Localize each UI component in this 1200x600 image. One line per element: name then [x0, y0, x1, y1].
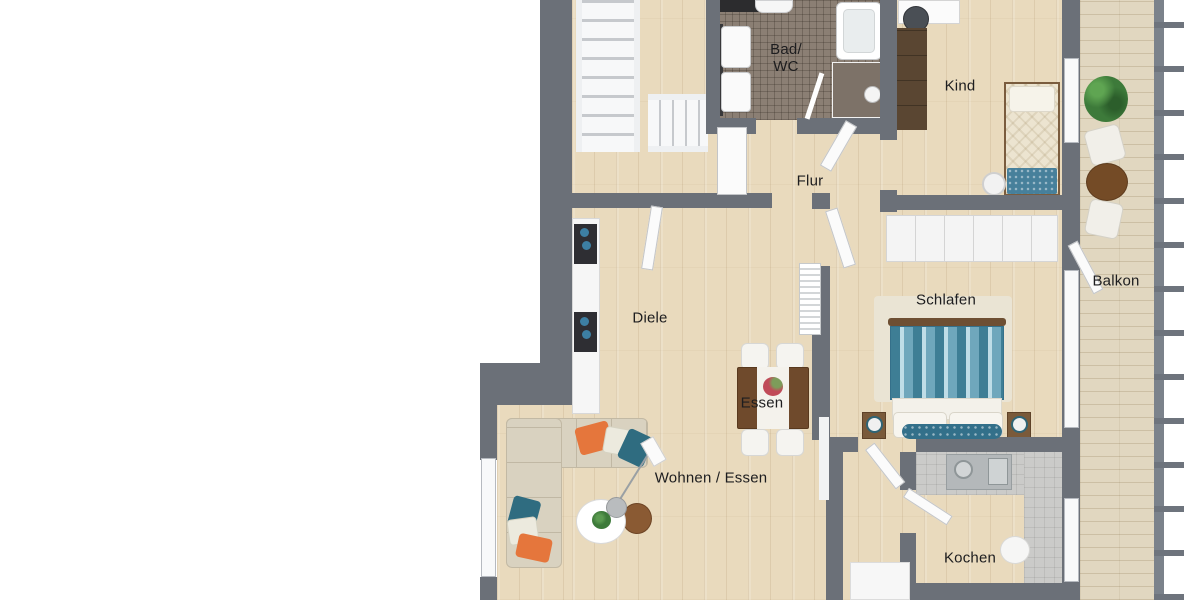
wall-bath-kind [880, 0, 897, 140]
wall-left-jog [480, 363, 572, 405]
toilet [755, 0, 793, 13]
nightstand-left-lamp [866, 416, 883, 433]
wall-schlafen-south-a [828, 437, 858, 452]
diele-radiator [799, 263, 821, 335]
dining-chair-top-left [741, 343, 769, 370]
wall-white-face [819, 417, 829, 500]
schlafen-wardrobe [886, 215, 1058, 262]
washbasin-bottom [721, 72, 751, 112]
kitchen-tile-floor-right [1024, 450, 1062, 588]
wall-left-lower-b [480, 577, 497, 600]
kitchen-pot [954, 460, 973, 479]
shower-drain [864, 86, 881, 103]
kochen-balcony-door [1064, 498, 1079, 582]
room-label-balkon: Balkon [1092, 272, 1139, 289]
balcony-plant [1084, 76, 1128, 122]
kind-bed-blue-blanket [1007, 168, 1057, 194]
bed-bolster [902, 424, 1002, 439]
wall-kind-south [880, 195, 1062, 210]
kind-wardrobe [897, 28, 927, 130]
wall-left-lower-a [480, 405, 497, 460]
sideboard-decor-1 [580, 228, 589, 237]
kind-bed-pillow [1009, 86, 1055, 112]
room-label-wohnen-essen: Wohnen / Essen [655, 469, 768, 486]
room-label-kochen: Kochen [944, 549, 996, 566]
wall-left-upper [540, 0, 572, 365]
double-bed-foot-rail [888, 318, 1006, 326]
sideboard-decor-3 [580, 317, 589, 326]
kind-balcony-window [1064, 58, 1079, 143]
dining-chair-bottom-right [776, 429, 804, 456]
room-label-essen: Essen [741, 394, 784, 411]
sideboard-decor-2 [582, 241, 591, 250]
nightstand-right-lamp [1011, 416, 1028, 433]
kitchen-round-table [1000, 536, 1030, 564]
staircase [576, 0, 640, 152]
living-room-window [481, 458, 496, 577]
entrance-door-leaf [717, 127, 747, 195]
wall-bottom [898, 583, 1080, 600]
room-label-diele: Diele [632, 309, 667, 326]
wall-diele-schlafen-top [812, 193, 830, 209]
wall-stairwell-east [706, 0, 720, 130]
table-flowers [763, 377, 783, 396]
sideboard-decor-4 [582, 330, 591, 339]
kind-ball-lamp [982, 172, 1006, 196]
room-label-schlafen: Schlafen [916, 291, 976, 308]
bathtub-basin [843, 9, 875, 53]
staircase-lower-flight [648, 94, 708, 152]
room-label-bad-wc: Bad/ WC [770, 41, 802, 76]
bad-wc-line2: WC [773, 58, 798, 75]
wall-schlafen-south-b [916, 437, 1075, 452]
bad-wc-line1: Bad/ [770, 41, 802, 58]
double-bed-duvet [890, 326, 1004, 400]
kitchen-sink [988, 458, 1008, 485]
room-label-kind: Kind [945, 77, 976, 94]
dining-chair-bottom-left [741, 429, 769, 456]
balcony-table [1086, 163, 1128, 201]
floorplan-canvas: Bad/ WC Kind Flur Diele Schlafen Balkon … [0, 0, 1200, 600]
room-label-flur: Flur [797, 172, 824, 189]
wall-hall-south [572, 193, 772, 208]
wall-kitchen-west-a [900, 452, 916, 490]
schlafen-balcony-door [1064, 270, 1079, 428]
balcony-railing-posts [1154, 0, 1184, 600]
washbasin-top [721, 26, 751, 68]
arc-lamp-base [606, 497, 627, 518]
nook-cabinet [850, 562, 910, 600]
dining-chair-top-right [776, 343, 804, 370]
